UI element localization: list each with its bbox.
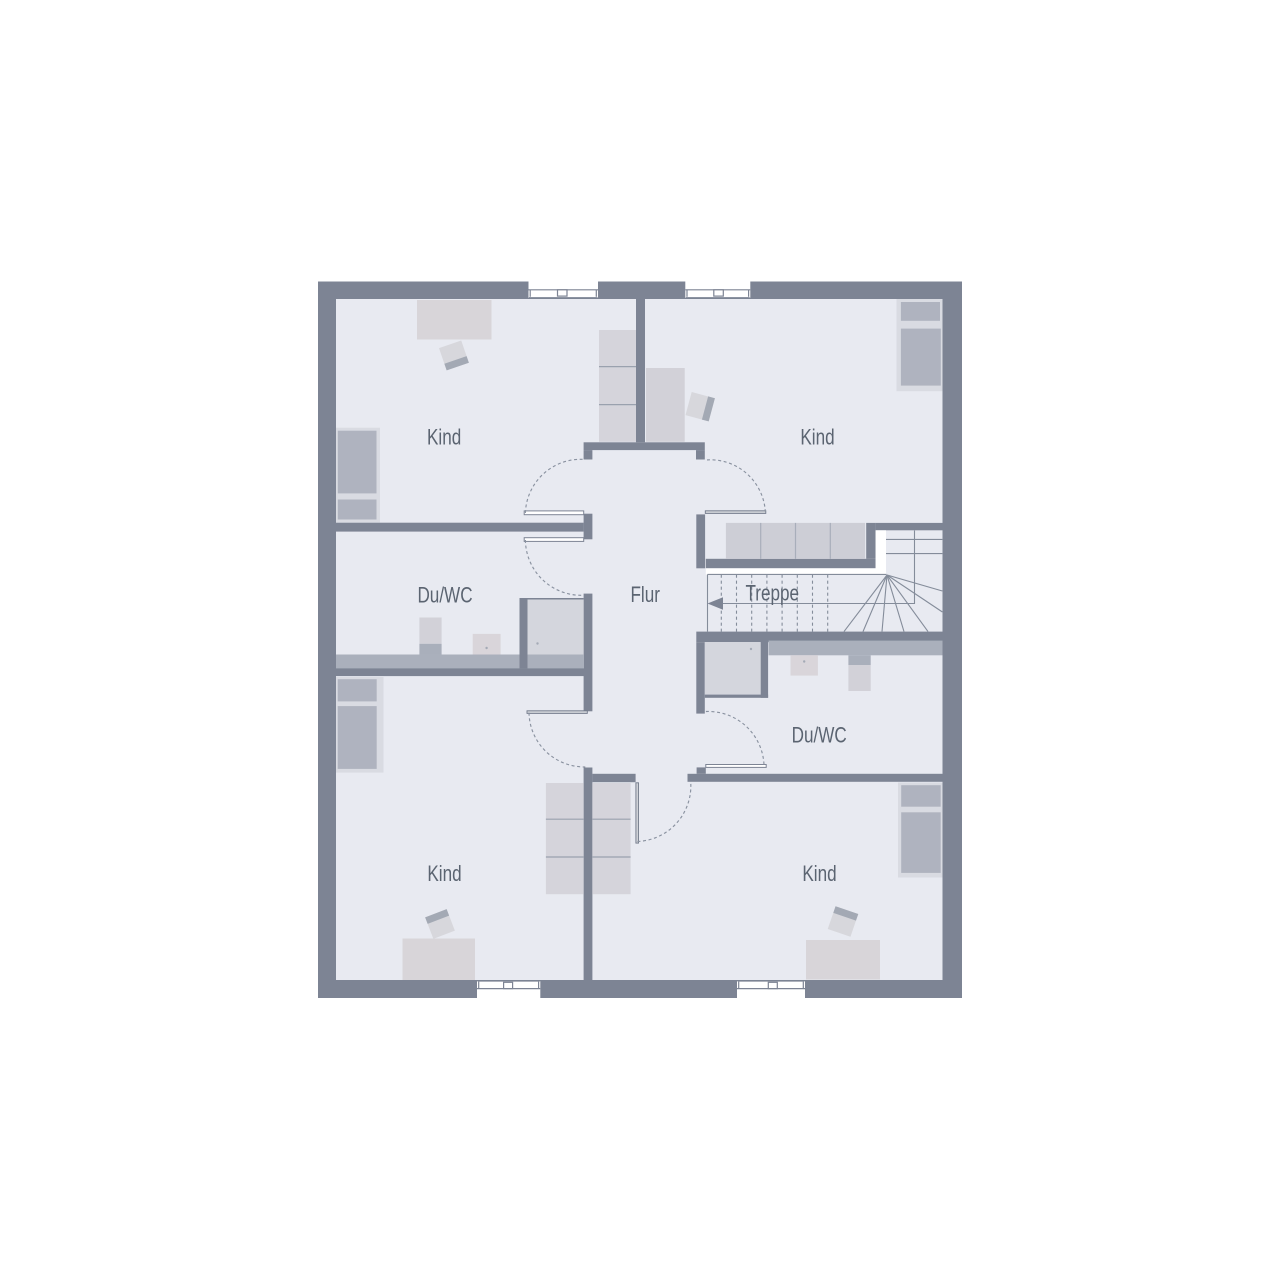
svg-text:Flur: Flur xyxy=(630,583,660,608)
svg-text:Treppe: Treppe xyxy=(745,581,799,606)
svg-text:Kind: Kind xyxy=(427,862,461,887)
svg-text:Kind: Kind xyxy=(800,425,834,450)
svg-text:Du/WC: Du/WC xyxy=(417,583,472,608)
svg-text:Kind: Kind xyxy=(802,862,836,887)
svg-text:Kind: Kind xyxy=(427,425,461,450)
svg-text:Du/WC: Du/WC xyxy=(792,723,847,748)
